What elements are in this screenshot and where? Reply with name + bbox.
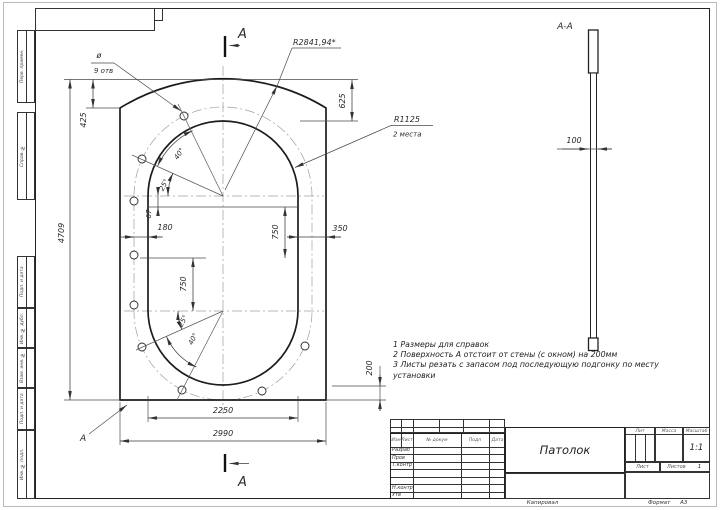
row-label-razrab: Разраб <box>392 447 410 453</box>
grid-line <box>413 434 414 498</box>
col-header-data: Дата <box>489 438 506 443</box>
company-cell <box>625 472 710 499</box>
dim-thickness: 100 <box>566 136 581 145</box>
dim-gap-left: 180 <box>157 223 172 232</box>
dim-gap-right: 350 <box>332 224 347 233</box>
grid-line <box>391 454 504 455</box>
dim-overall-height: 4709 <box>57 223 66 243</box>
organization-cell <box>505 473 625 499</box>
angle-label-bottom-small: 25° <box>177 314 190 329</box>
section-strip-top <box>589 30 599 73</box>
note-line: 1 Размеры для справок <box>393 340 675 350</box>
row-label-prov: Пров <box>392 455 405 461</box>
sheet-cell: Лист <box>625 462 660 472</box>
grid-line <box>391 469 504 470</box>
note-line: установки <box>393 371 675 381</box>
grid-line <box>489 420 490 432</box>
mass-value-cell <box>655 434 683 462</box>
hole <box>130 197 138 205</box>
radius-line <box>225 86 277 190</box>
grid-line <box>439 420 440 432</box>
grid-line <box>401 420 402 432</box>
dim-upper-span: 750 <box>271 224 280 239</box>
grid-line <box>391 492 504 493</box>
dim-overall-width: 2990 <box>213 429 233 438</box>
col-header-podp: Подп <box>461 438 489 443</box>
scale-value: 1:1 <box>690 443 704 453</box>
angle-arc <box>158 131 193 166</box>
angle-label-top-large: 40° <box>173 146 187 161</box>
lit-value-cell <box>625 434 655 462</box>
dim-center-offset: 67 <box>145 209 153 218</box>
format-strip: Формат А3 <box>648 500 687 506</box>
leader-line <box>89 405 127 434</box>
part-name: Патолок <box>540 443 591 457</box>
grid-line <box>645 435 646 461</box>
surface-label: А <box>79 434 86 444</box>
grid-line <box>391 427 504 428</box>
format-label: Формат <box>648 500 670 506</box>
sheets-value: 1 <box>698 464 702 470</box>
grid-line <box>635 435 636 461</box>
part-name-cell: Патолок <box>505 427 625 473</box>
hole <box>301 342 309 350</box>
hole <box>258 387 266 395</box>
technical-notes: 1 Размеры для справок 2 Поверхность А от… <box>393 340 675 381</box>
note-line: 3 Листы резать с запасом под последующую… <box>393 360 675 370</box>
leader-line <box>114 63 181 111</box>
hole <box>130 301 138 309</box>
leader-line <box>295 126 391 168</box>
outer-radius-label: R2841,94* <box>293 38 336 47</box>
dim-arc-rise: 625 <box>338 93 347 108</box>
copied-by: Капировал <box>480 500 605 506</box>
mass-label: Масса <box>662 429 677 434</box>
leader-line <box>277 48 292 86</box>
grid-line <box>413 420 414 432</box>
row-label-utv: Утв <box>392 492 401 498</box>
col-header-list: Лист <box>401 438 413 443</box>
sheet-label: Лист <box>636 464 649 470</box>
dim-top-drop: 425 <box>79 112 88 127</box>
dim-bottom-gap: 200 <box>365 360 374 375</box>
row-label-tkontr: Т.контр <box>392 462 412 468</box>
scale-label: Масштаб <box>686 429 708 434</box>
lit-label: Лит <box>635 429 644 434</box>
sheets-label: Листов <box>667 464 686 470</box>
grid-line <box>463 420 464 432</box>
col-header-izm: Изм <box>391 438 401 443</box>
section-letter-top: А <box>237 27 247 42</box>
drawing-sheet: Перв. примен. Справ. № Подп. и дата Инв.… <box>0 0 720 510</box>
note-line: 2 Поверхность А отстоит от стены (с окно… <box>393 350 675 360</box>
scale-value-cell: 1:1 <box>683 434 710 462</box>
hole <box>130 251 138 259</box>
col-header-docnum: № докум <box>413 438 461 443</box>
angle-ray <box>178 104 223 196</box>
hole <box>138 155 146 163</box>
grid-line <box>461 434 462 498</box>
format-value: А3 <box>680 500 687 506</box>
grid-line <box>489 434 490 498</box>
sheets-cell: Листов 1 <box>660 462 710 472</box>
section-letter-bottom: А <box>237 475 247 490</box>
angle-label-bottom-large: 40° <box>187 332 200 347</box>
holes-dia-label: ø <box>96 51 102 60</box>
angle-label-top-small: 25° <box>158 178 171 193</box>
dim-lower-span: 750 <box>179 276 188 291</box>
section-view-title: А-А <box>556 22 573 32</box>
inner-radius-qty: 2 места <box>393 131 421 139</box>
dim-cutout-width: 2250 <box>213 406 233 415</box>
holes-qty-label: 9 отв <box>94 67 113 75</box>
inner-radius-label: R1125 <box>394 115 420 124</box>
row-label-nkontr: Н.контр <box>392 485 413 491</box>
section-strip-middle <box>591 73 597 338</box>
grid-line <box>391 477 504 478</box>
revision-rows <box>390 419 505 433</box>
